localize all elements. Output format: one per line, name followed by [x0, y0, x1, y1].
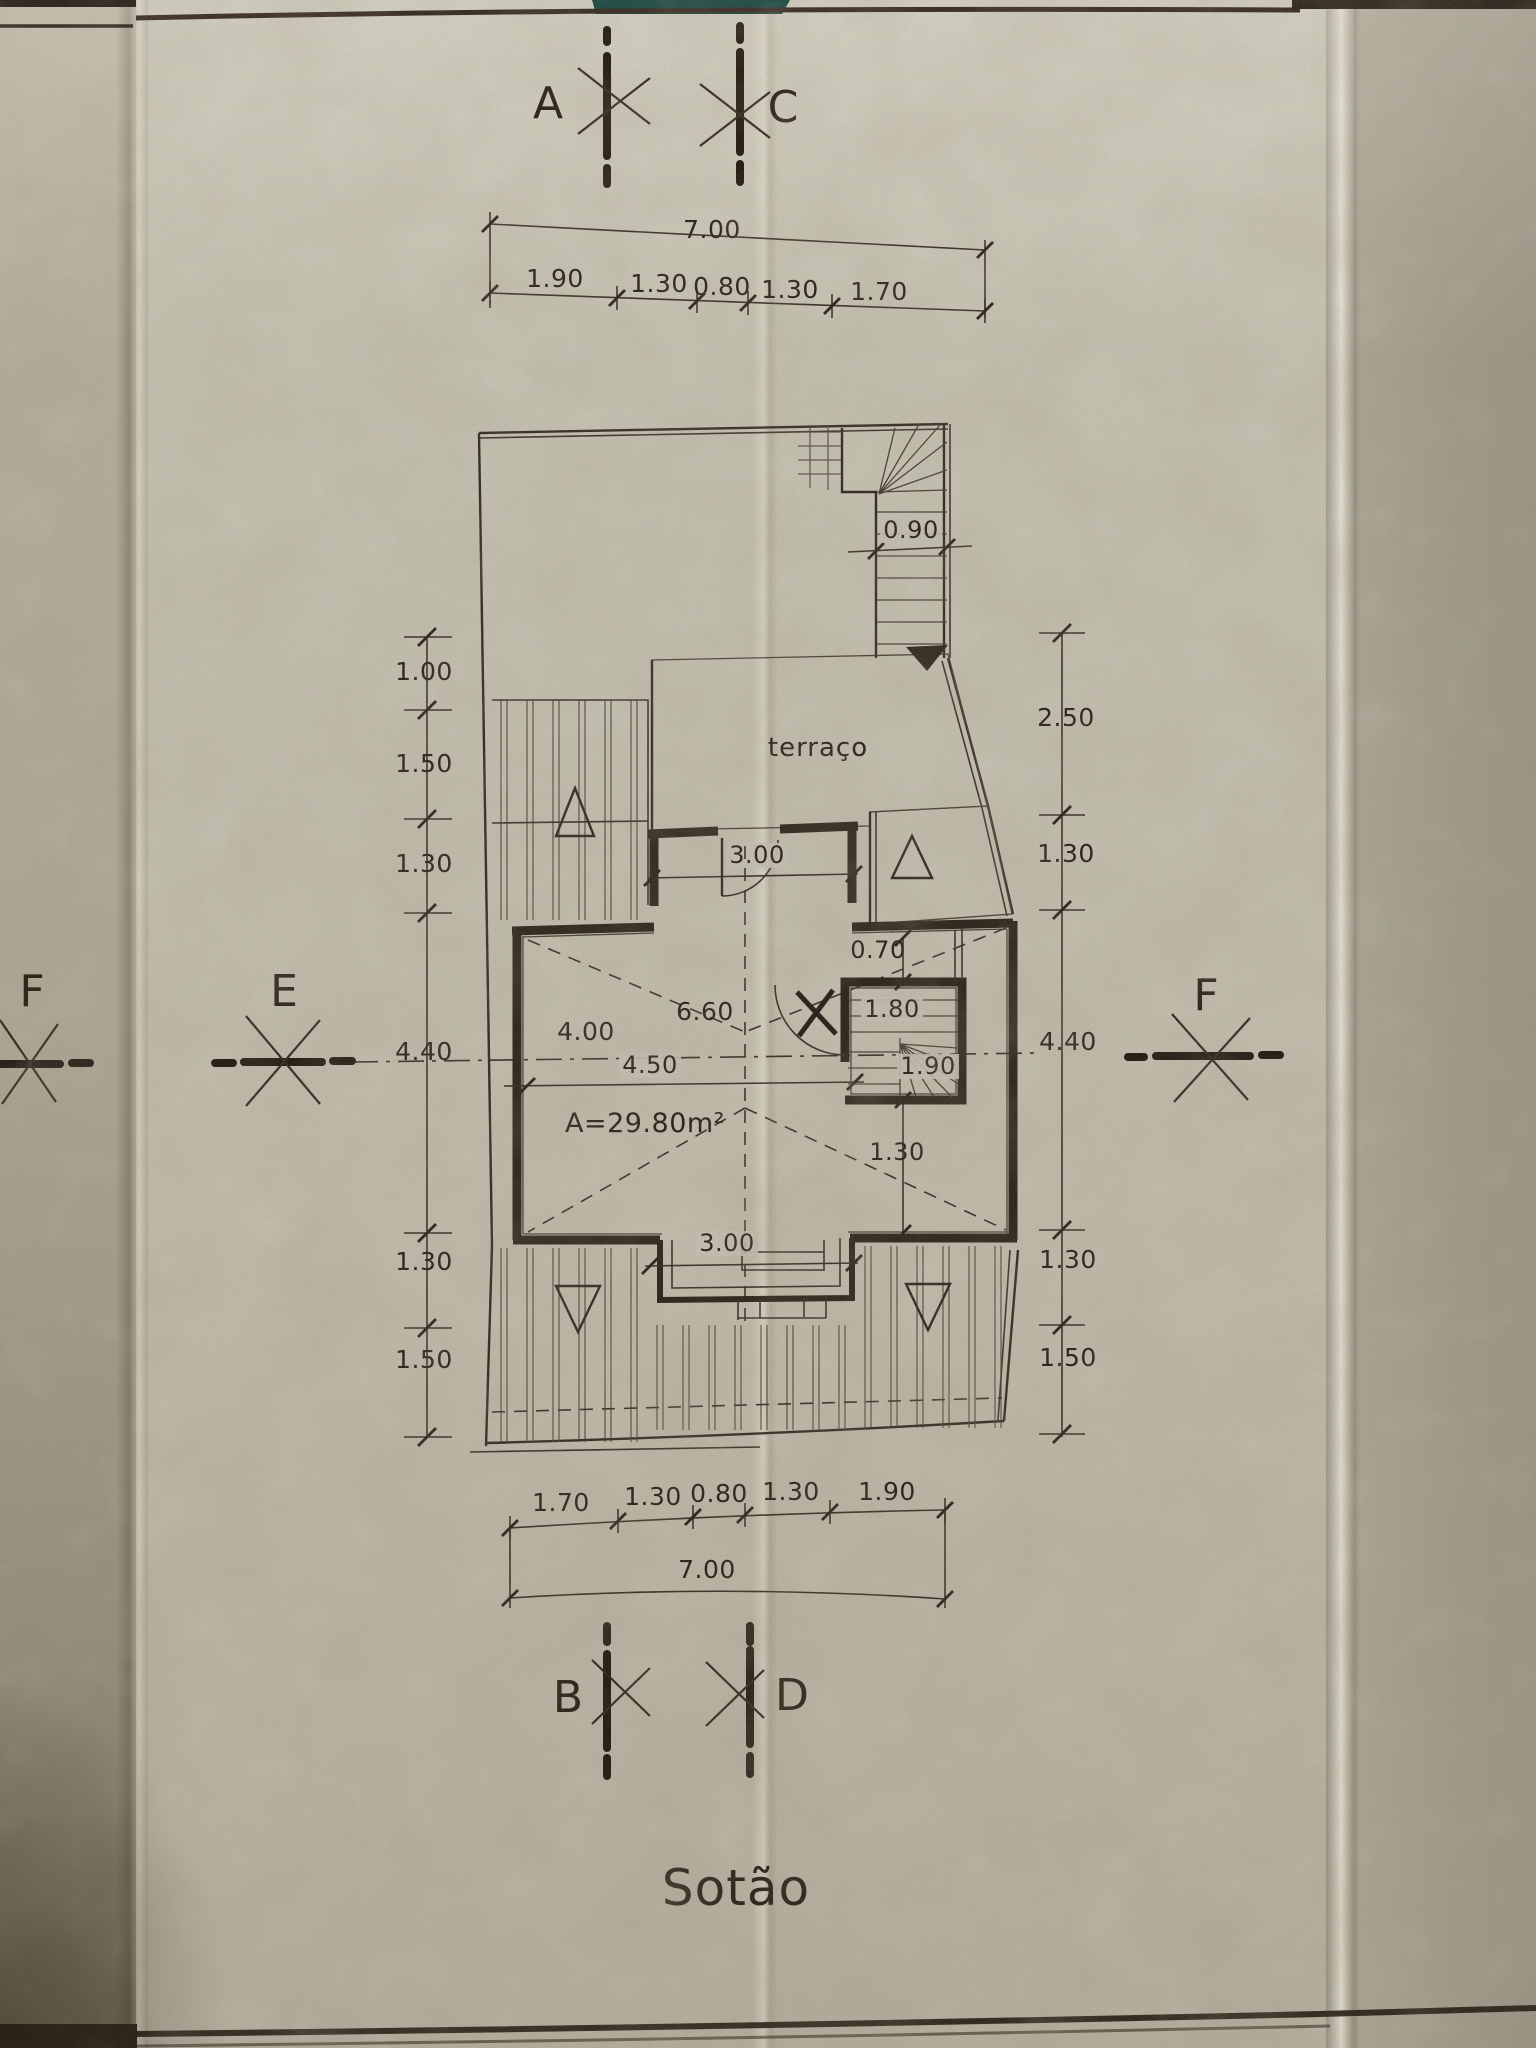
plan-drawing: terraço [0, 0, 1536, 2048]
photo-of-drawing-sheet: terraço [0, 0, 1536, 2048]
paper-grain-texture [0, 0, 1536, 2048]
